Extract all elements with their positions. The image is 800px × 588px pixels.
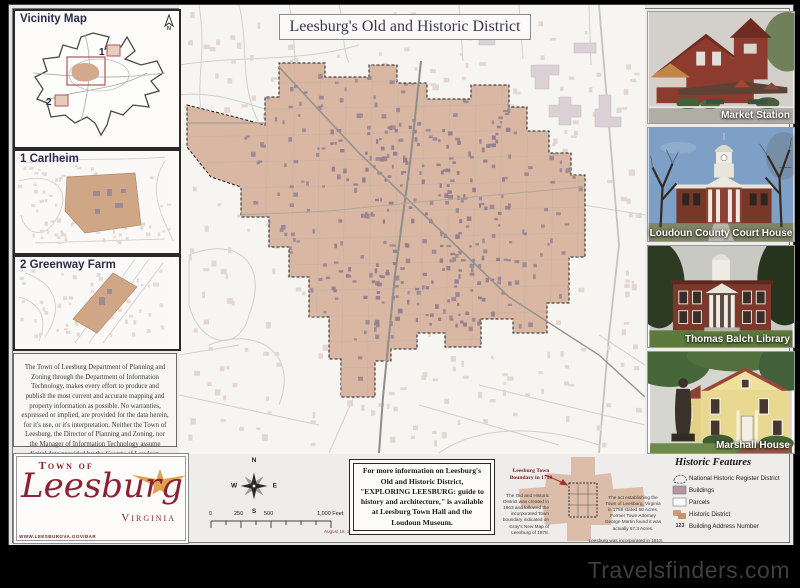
boundary-1758-footnote: Leesburg was incorporated in 1813.	[573, 538, 663, 543]
compass-rose-icon	[231, 464, 277, 508]
boundary-1758-right-note: The act establishing the Town of Leesbur…	[603, 495, 663, 532]
main-map-canvas	[179, 5, 645, 454]
watermark: Travelsfinders.com	[588, 557, 790, 584]
photo-label-marshall-house: Marshall House	[716, 440, 790, 451]
legend-row-register-district: National Historic Register District	[671, 472, 791, 484]
carlheim-map-canvas	[15, 151, 175, 249]
north-arrow-label: N	[163, 26, 175, 32]
bottom-bar: Travelsfinders.com	[0, 545, 800, 588]
town-logo-box: Town of Leesburg Virginia WWW.LEESBURGVA…	[13, 453, 189, 544]
map-title-box: Leesburg's Old and Historic District	[279, 14, 531, 40]
address-number-sample: 123	[671, 523, 689, 529]
legend-row-historic-district: Historic District	[671, 508, 791, 520]
photo-marshall-house: Marshall House	[647, 351, 795, 454]
compass-rose: N S W E	[231, 457, 277, 515]
legend-row-address-number: 123 Building Address Number	[671, 520, 791, 532]
legend: Historic Features National Historic Regi…	[665, 457, 791, 544]
inset-greenway-panel: 2 Greenway Farm	[13, 255, 181, 351]
logo-state: Virginia	[121, 512, 176, 524]
map-poster: Leesburg's Old and Historic District Vic…	[8, 4, 794, 547]
photo-market-station: Market Station	[647, 11, 795, 124]
info-box-text: For more information on Leesburg's Old a…	[354, 464, 490, 530]
photo-thomas-balch: Thomas Balch Library	[647, 245, 795, 348]
legend-row-parcels: Parcels	[671, 496, 791, 508]
info-box: For more information on Leesburg's Old a…	[353, 463, 491, 531]
logo-name: Leesburg	[21, 466, 183, 506]
photo-label-thomas-balch: Thomas Balch Library	[685, 334, 790, 345]
boundary-1758-callout: Leesburg Town Boundary in 1758	[505, 468, 557, 481]
historic-district-swatch-icon	[672, 508, 688, 520]
vicinity-map-canvas: 1 2	[15, 11, 175, 143]
vicinity-district-blob	[72, 63, 100, 82]
inset-carlheim-panel: 1 Carlheim	[13, 149, 181, 255]
vicinity-marker-2: 2	[46, 97, 52, 108]
legend-row-buildings: Buildings	[671, 484, 791, 496]
thomas-balch-image	[648, 246, 794, 347]
vicinity-map-title: Vicinity Map	[20, 13, 87, 25]
logo-url: WWW.LEESBURGVA.GOV/BAR	[19, 534, 96, 539]
scale-250: 250	[234, 511, 243, 517]
photo-label-court-house: Loudoun County Court House	[650, 228, 793, 239]
north-arrow: N	[163, 14, 175, 32]
carlheim-parcel	[65, 173, 141, 233]
vicinity-marker-2-box	[55, 95, 68, 106]
boundary-1758-left-note: The Old and Historic District was create…	[493, 493, 549, 536]
scale-1000: 1,000 Feet	[317, 511, 343, 517]
photo-court-house: Loudoun County Court House	[647, 127, 795, 242]
market-station-image	[648, 12, 794, 123]
scale-500: 500	[264, 511, 273, 517]
legend-title: Historic Features	[675, 457, 791, 468]
court-house-image	[648, 128, 794, 241]
marshall-house-image	[648, 352, 794, 453]
buildings-swatch-icon	[672, 485, 688, 495]
disclaimer-box: The Town of Leesburg Department of Plann…	[13, 353, 177, 447]
scale-bar: 0 250 500 1,000 Feet August 18, 2011	[205, 511, 357, 539]
main-district-map	[179, 5, 645, 454]
photo-label-market-station: Market Station	[721, 110, 790, 121]
page-title: Leesburg's Old and Historic District	[290, 18, 521, 36]
scale-0: 0	[209, 511, 212, 517]
parcels-swatch-icon	[672, 497, 688, 507]
scale-bar-icon	[205, 519, 355, 529]
inset-carlheim-label: 1 Carlheim	[20, 153, 79, 165]
vicinity-marker-1-box	[107, 45, 120, 56]
boundary-1758-diagram: Leesburg Town Boundary in 1758 The Old a…	[493, 455, 663, 545]
inset-greenway-label: 2 Greenway Farm	[20, 259, 116, 271]
vicinity-marker-1: 1	[99, 47, 105, 58]
vicinity-map-panel: Vicinity Map N 1 2	[13, 9, 181, 149]
register-district-icon	[672, 472, 688, 484]
compass-n: N	[252, 457, 257, 464]
